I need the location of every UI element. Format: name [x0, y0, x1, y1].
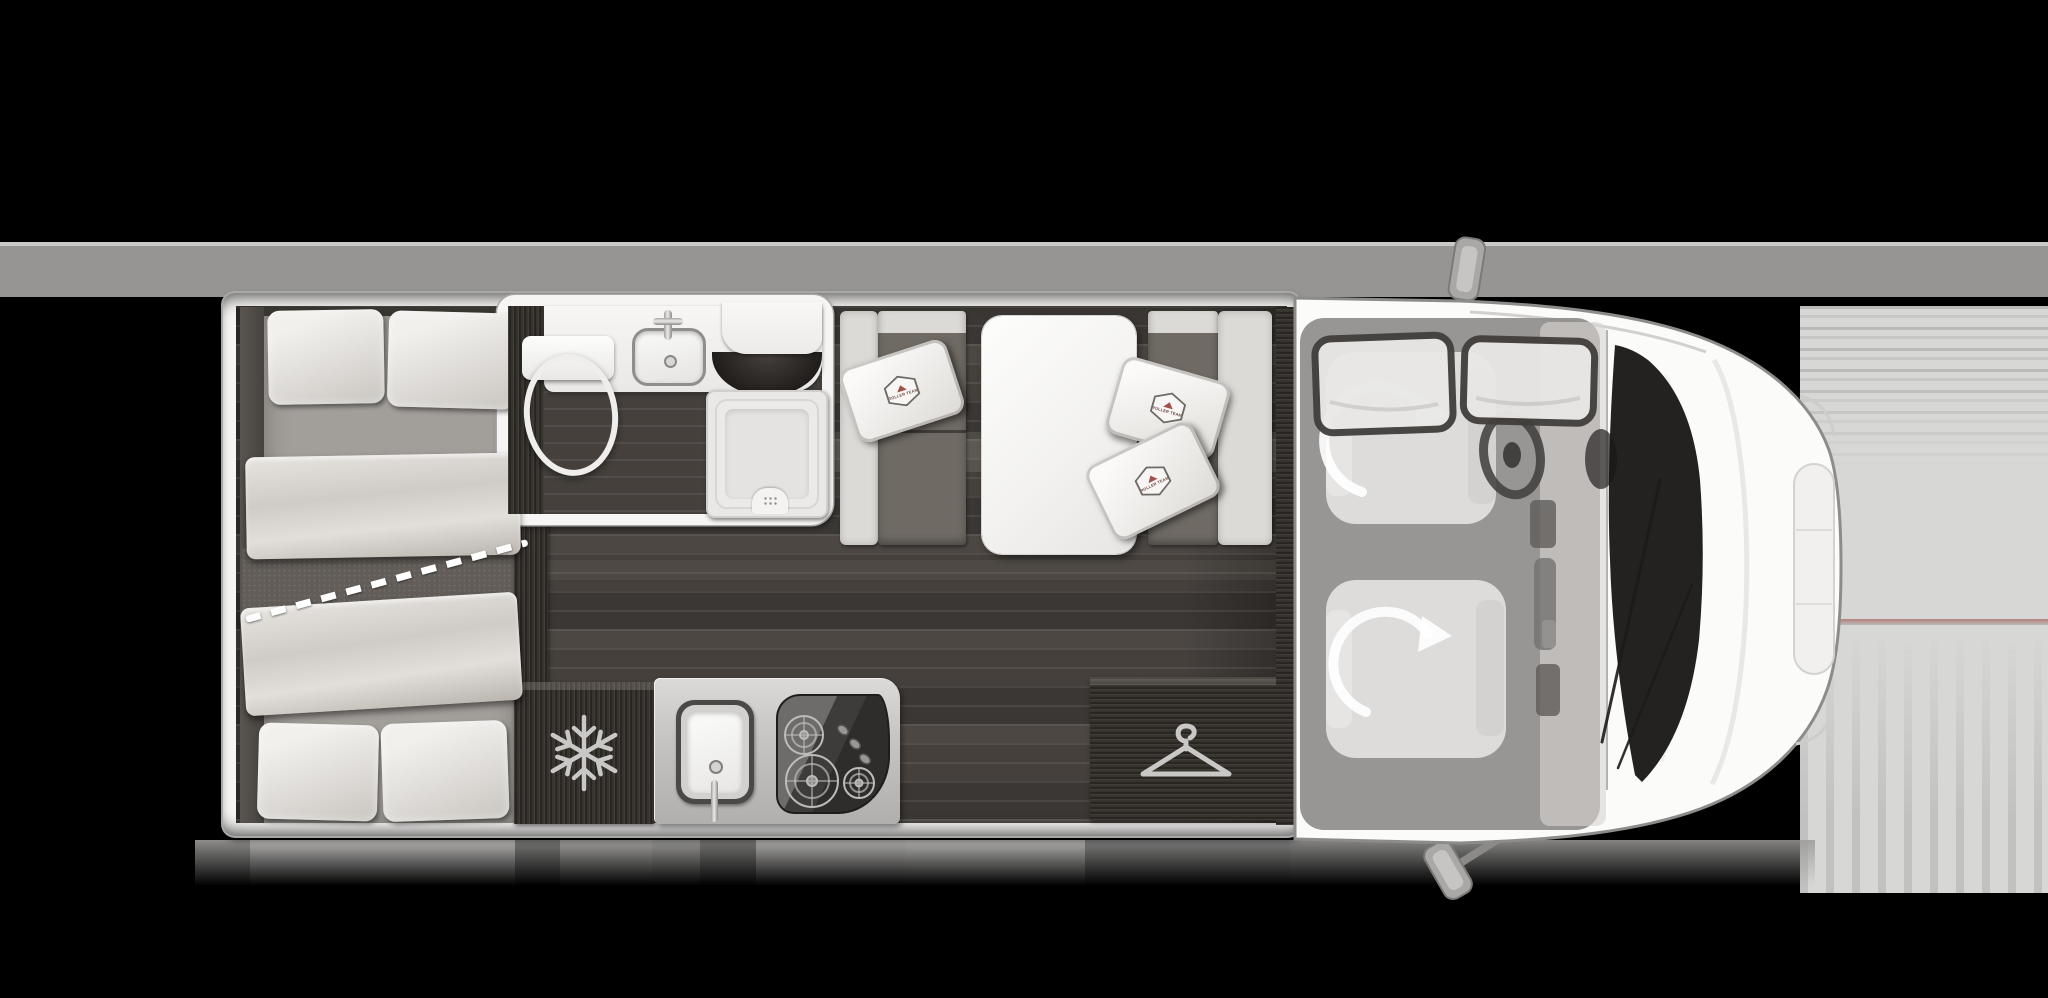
faucet-icon	[664, 310, 672, 340]
kitchen-faucet-icon	[711, 780, 718, 822]
wardrobe	[1090, 677, 1282, 820]
driver-swivel-seat	[1326, 580, 1506, 758]
bed-pillow	[257, 722, 379, 821]
washroom-shelf	[722, 302, 822, 354]
gas-burner-icon	[776, 694, 890, 814]
floor-light-plank	[544, 560, 1280, 580]
snowflake-icon	[545, 714, 623, 792]
basin-drain-icon	[664, 355, 677, 368]
roller-team-logo: ROLLER TEAM	[1130, 459, 1176, 504]
shower-tray-floor	[725, 409, 809, 499]
sink-drain-icon	[709, 760, 723, 774]
faucet-handle-icon	[653, 318, 683, 325]
vehicle-cab-front	[1270, 228, 1870, 908]
bed-pillow	[387, 310, 517, 409]
drain-grid-icon	[752, 488, 788, 514]
wing-mirror-bottom-icon	[1421, 837, 1500, 902]
fridge-cabinet	[514, 682, 654, 824]
dinette-backrest-right	[1218, 311, 1272, 545]
clothes-hanger-icon	[1140, 717, 1232, 781]
bed-pillow	[267, 309, 385, 405]
floorplan-page: ROLLER TEAM ROLLER TEAM ROLLER TEAM	[0, 0, 2048, 998]
bed-pillow	[380, 720, 509, 822]
roller-team-logo: ROLLER TEAM	[880, 370, 924, 412]
bed-duvet	[245, 453, 521, 560]
